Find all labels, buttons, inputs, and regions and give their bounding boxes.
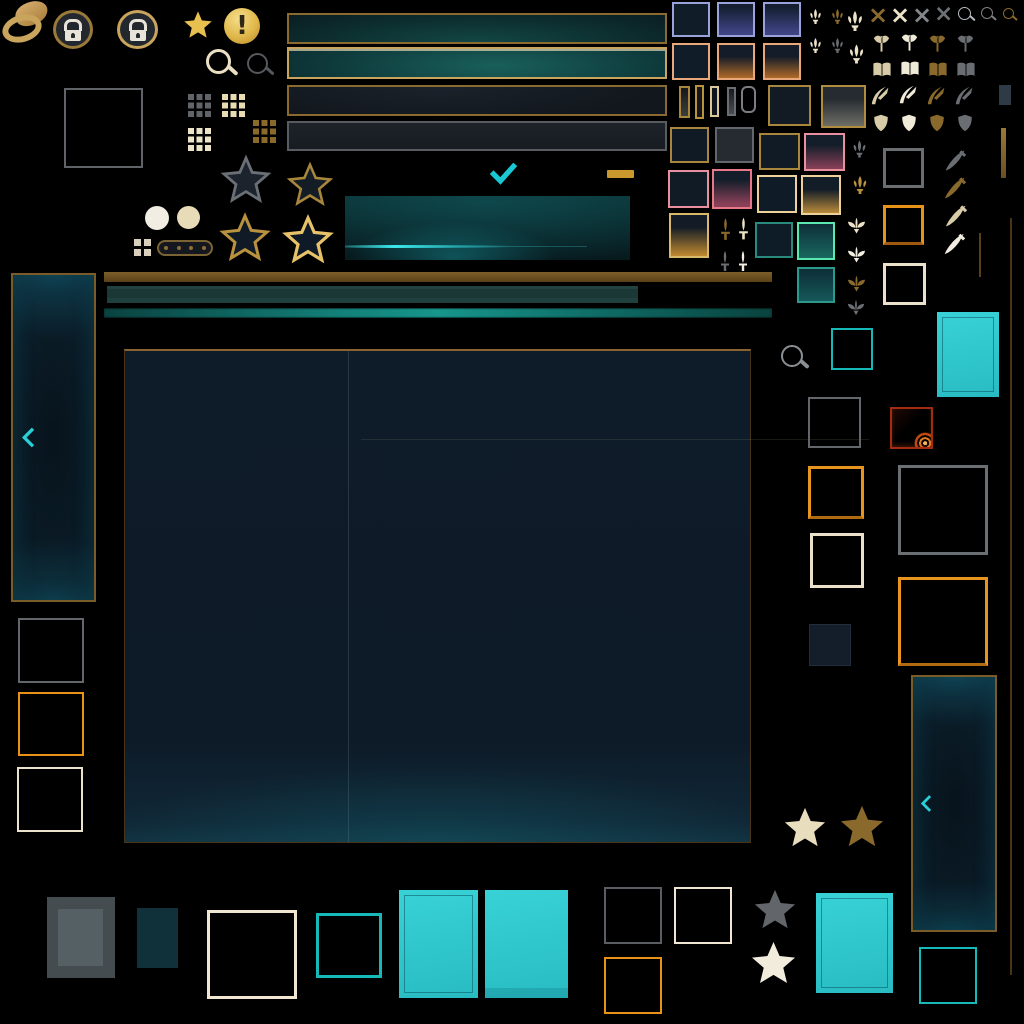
swatch-gold-gradient (669, 213, 709, 258)
sword-pin-icon (719, 248, 731, 274)
button-bar-navy[interactable] (287, 85, 667, 116)
exclamation-glyph: ! (236, 11, 248, 41)
close-icon[interactable]: × (934, 3, 953, 26)
search-icon[interactable] (781, 345, 803, 367)
swatch-cream-gold (801, 175, 841, 215)
swatch-pink-maroon (712, 169, 752, 209)
swatch-mint-teal (797, 222, 835, 260)
shield-class-icon (900, 111, 918, 135)
strip-aqua (104, 308, 772, 318)
swatch-peach-orange (717, 43, 755, 80)
bow-class-icon (896, 84, 921, 105)
rating-star-outline[interactable] (284, 216, 332, 262)
side-panel-left (11, 273, 96, 602)
exclamation-badge[interactable]: ! (224, 8, 260, 44)
side-panel-right (911, 675, 997, 932)
gray-block-inner (58, 909, 103, 966)
lock-icon[interactable] (53, 10, 93, 49)
pill-frame-cream (710, 86, 719, 117)
lock-icon[interactable] (117, 10, 158, 49)
search-icon[interactable] (1003, 8, 1014, 19)
slot-frame-gray-large (898, 465, 988, 555)
moth-icon (846, 243, 867, 265)
search-icon[interactable] (981, 7, 993, 19)
rating-star-solid[interactable] (838, 804, 886, 848)
swatch-dark-slate (999, 85, 1011, 105)
dash-indicator (607, 170, 634, 178)
swatch-cream-navy (757, 175, 797, 213)
fleur-icon (830, 3, 845, 30)
thin-divider-line (979, 233, 981, 277)
slot-frame-cream (674, 887, 732, 944)
gray-block-outer (47, 897, 115, 978)
slot-frame-cream (17, 767, 83, 832)
fleur-icon (851, 136, 868, 162)
button-bar-teal[interactable] (287, 13, 667, 44)
slot-frame-cream (883, 263, 926, 305)
slot-frame-teal (919, 947, 977, 1004)
rating-star-solid[interactable] (750, 940, 797, 985)
swatch-peach-orange (763, 43, 801, 80)
cyan-block (485, 890, 568, 998)
axe-class-icon (926, 31, 949, 55)
grid-menu-icon[interactable] (188, 94, 211, 117)
strip-dark-teal (107, 286, 638, 303)
fleur-icon (830, 33, 845, 58)
shield-class-icon (956, 111, 974, 135)
pill-frame-gray (727, 87, 736, 116)
shield-class-icon (872, 111, 890, 135)
swatch-lavender-purple (717, 2, 755, 37)
slot-frame-gray (64, 88, 143, 168)
shield-class-icon (928, 111, 946, 135)
dagger-icon (941, 147, 967, 173)
swatch-dark-teal (137, 908, 178, 968)
slot-frame-gray (18, 618, 84, 683)
dot-cream (177, 206, 200, 229)
swatch-pink-navy (668, 170, 709, 208)
slot-frame-cream (810, 533, 864, 588)
close-icon[interactable]: × (912, 3, 932, 27)
slot-frame-orange (883, 205, 924, 245)
star-icon[interactable] (183, 10, 213, 39)
chevron-left-icon[interactable] (21, 427, 34, 448)
moth-icon (846, 214, 867, 236)
swatch-lavender-navy (672, 2, 710, 37)
sword-pin-icon (737, 248, 749, 274)
swatch-peach-navy (672, 43, 710, 80)
fleur-icon (845, 6, 865, 36)
cyan-block (399, 890, 478, 998)
book-class-icon (898, 59, 922, 78)
swatch-gray (715, 127, 754, 163)
slot-frame-cream-large (207, 910, 297, 999)
search-icon[interactable] (958, 7, 971, 20)
fleur-icon (808, 33, 823, 58)
strip-brown (104, 272, 772, 282)
slot-frame-orange-large (898, 577, 988, 666)
slot-frame-teal (316, 913, 382, 978)
grid-menu-icon[interactable] (222, 94, 245, 117)
grid-menu-icon[interactable] (188, 128, 211, 151)
moth-icon (846, 297, 866, 317)
cyan-block (937, 312, 999, 397)
dagger-icon (940, 174, 967, 201)
slot-frame-gray (604, 887, 662, 944)
bow-class-icon (868, 85, 893, 106)
lock-shackle (129, 19, 147, 31)
slot-frame-flame (890, 407, 933, 449)
close-icon[interactable]: × (868, 3, 888, 27)
lock-body (130, 30, 146, 41)
hat-swoosh-icon (2, 2, 50, 40)
main-panel (124, 349, 751, 843)
slot-frame-orange (604, 957, 662, 1014)
lock-shackle (64, 19, 82, 31)
swatch-gold-navy (670, 127, 709, 163)
rating-star-solid[interactable] (783, 806, 827, 848)
slot-frame-gray (808, 397, 861, 448)
pill-frame-gold (695, 85, 704, 119)
swatch-pink-maroon (804, 133, 845, 171)
rating-star-outline[interactable] (288, 162, 332, 206)
slot-gold-navy (768, 85, 811, 126)
button-bar-teal-hover[interactable] (287, 47, 667, 79)
slot-frame-gray (883, 148, 924, 188)
book-class-icon (870, 60, 894, 79)
close-icon[interactable]: × (890, 3, 910, 27)
moth-icon (846, 272, 867, 294)
button-bar-gray[interactable] (287, 121, 667, 151)
swatch-navy (809, 624, 851, 666)
dagger-icon (941, 202, 968, 229)
book-class-icon (926, 60, 950, 79)
dagger-icon (940, 230, 966, 257)
cyan-block (816, 893, 893, 993)
axe-class-icon (898, 30, 921, 54)
slider-pill[interactable] (157, 240, 213, 256)
dot-white (145, 206, 169, 230)
rating-star-outline[interactable] (222, 156, 270, 202)
lock-body (65, 30, 81, 41)
rating-star-outline[interactable] (219, 214, 271, 260)
pill-frame-gold (679, 86, 690, 118)
swatch-teal-gradient (797, 267, 835, 303)
rating-star-solid[interactable] (753, 888, 797, 930)
sword-pin-icon (737, 213, 750, 244)
axe-class-icon (870, 31, 893, 55)
gold-divider-line (1001, 128, 1006, 178)
fleur-icon (808, 3, 823, 30)
grid4-icon[interactable] (134, 239, 151, 256)
checkmark-icon[interactable] (491, 164, 516, 184)
swatch-gold-navy (759, 133, 800, 170)
search-icon[interactable] (247, 53, 268, 74)
swatch-teal-navy (755, 222, 793, 258)
fleur-icon (851, 170, 869, 200)
cta-button-glow[interactable] (345, 196, 630, 260)
bow-class-icon (952, 85, 977, 106)
sword-pin-icon (719, 214, 732, 244)
axe-class-icon (954, 31, 977, 55)
slot-frame-teal (831, 328, 873, 370)
book-class-icon (954, 60, 978, 79)
chevron-left-icon[interactable] (920, 795, 931, 812)
slot-gold-gray-gradient (821, 85, 866, 128)
thin-divider-line (1010, 218, 1012, 975)
panel-divider (348, 351, 349, 842)
panel-rule (361, 439, 869, 440)
fleur-icon (847, 40, 866, 68)
grid-menu-icon[interactable] (253, 120, 276, 143)
bow-class-icon (924, 85, 949, 106)
slot-frame-orange (18, 692, 84, 756)
swatch-lavender-purple (763, 2, 801, 37)
search-icon[interactable] (206, 49, 231, 74)
slot-frame-orange (808, 466, 864, 519)
cta-shine-soft (345, 246, 587, 247)
rounded-frame-gray (741, 86, 756, 113)
